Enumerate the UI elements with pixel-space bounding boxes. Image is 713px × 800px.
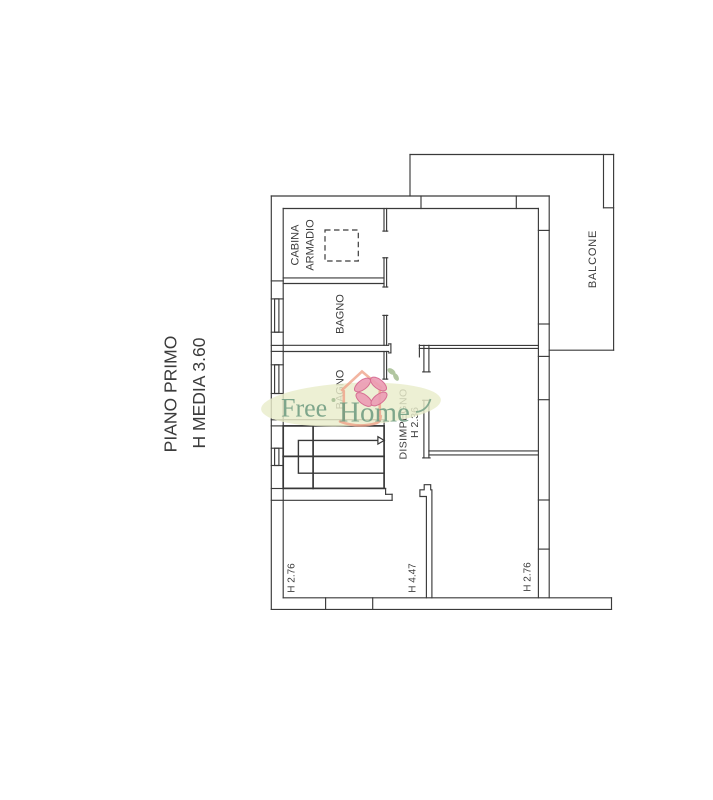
svg-text:H 2.76: H 2.76 — [523, 562, 534, 592]
svg-text:Free: Free — [281, 394, 327, 423]
svg-text:H 4.47: H 4.47 — [408, 563, 419, 593]
svg-text:PIANO PRIMO: PIANO PRIMO — [161, 336, 181, 453]
svg-text:Home: Home — [339, 397, 410, 429]
svg-text:H 2.76: H 2.76 — [287, 563, 298, 593]
svg-text:ARMADIO: ARMADIO — [304, 219, 316, 271]
svg-text:H MEDIA 3.60: H MEDIA 3.60 — [189, 337, 209, 448]
svg-text:BAGNO: BAGNO — [335, 294, 347, 334]
svg-text:CABINA: CABINA — [290, 224, 302, 266]
svg-text:BALCONE: BALCONE — [587, 230, 599, 288]
